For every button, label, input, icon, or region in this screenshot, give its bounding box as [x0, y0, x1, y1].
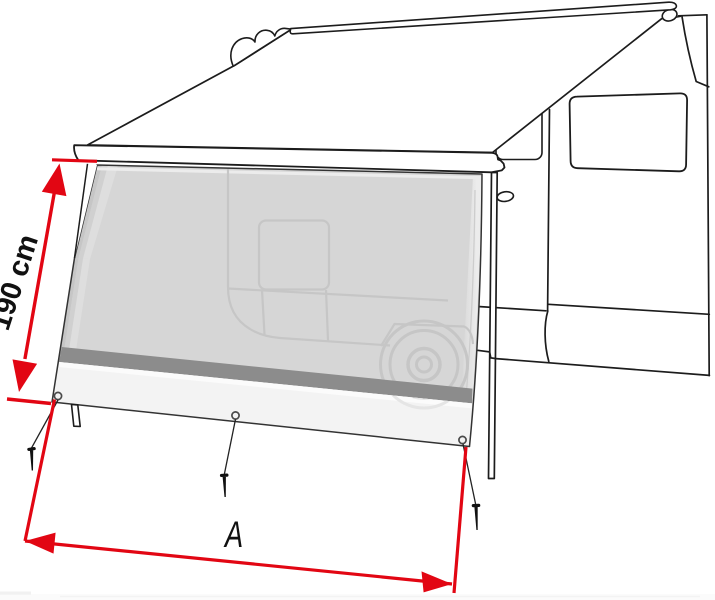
svg-text:A: A: [223, 514, 243, 555]
